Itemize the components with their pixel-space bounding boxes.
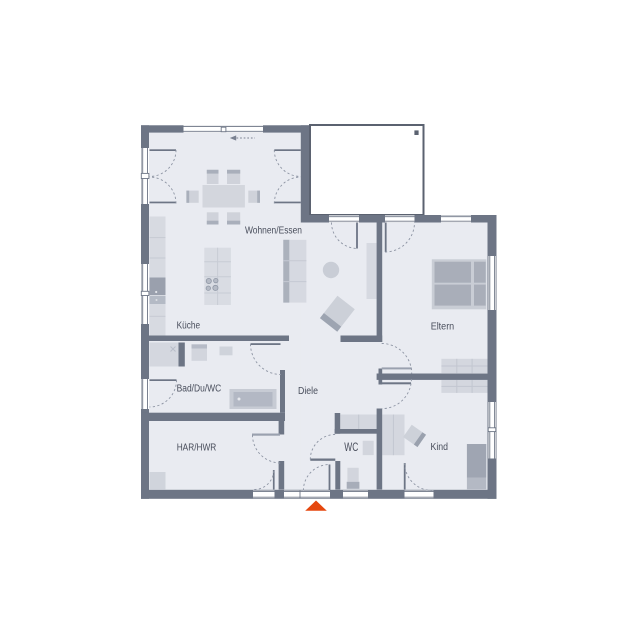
svg-text:Wohnen/Essen: Wohnen/Essen [245, 226, 302, 237]
svg-text:Küche: Küche [177, 321, 201, 332]
svg-text:Eltern: Eltern [431, 322, 455, 333]
svg-text:Diele: Diele [298, 386, 318, 397]
svg-text:WC: WC [344, 441, 358, 454]
svg-text:Bad/Du/WC: Bad/Du/WC [177, 384, 222, 395]
svg-text:HAR/HWR: HAR/HWR [177, 443, 217, 454]
svg-text:Kind: Kind [431, 442, 449, 453]
